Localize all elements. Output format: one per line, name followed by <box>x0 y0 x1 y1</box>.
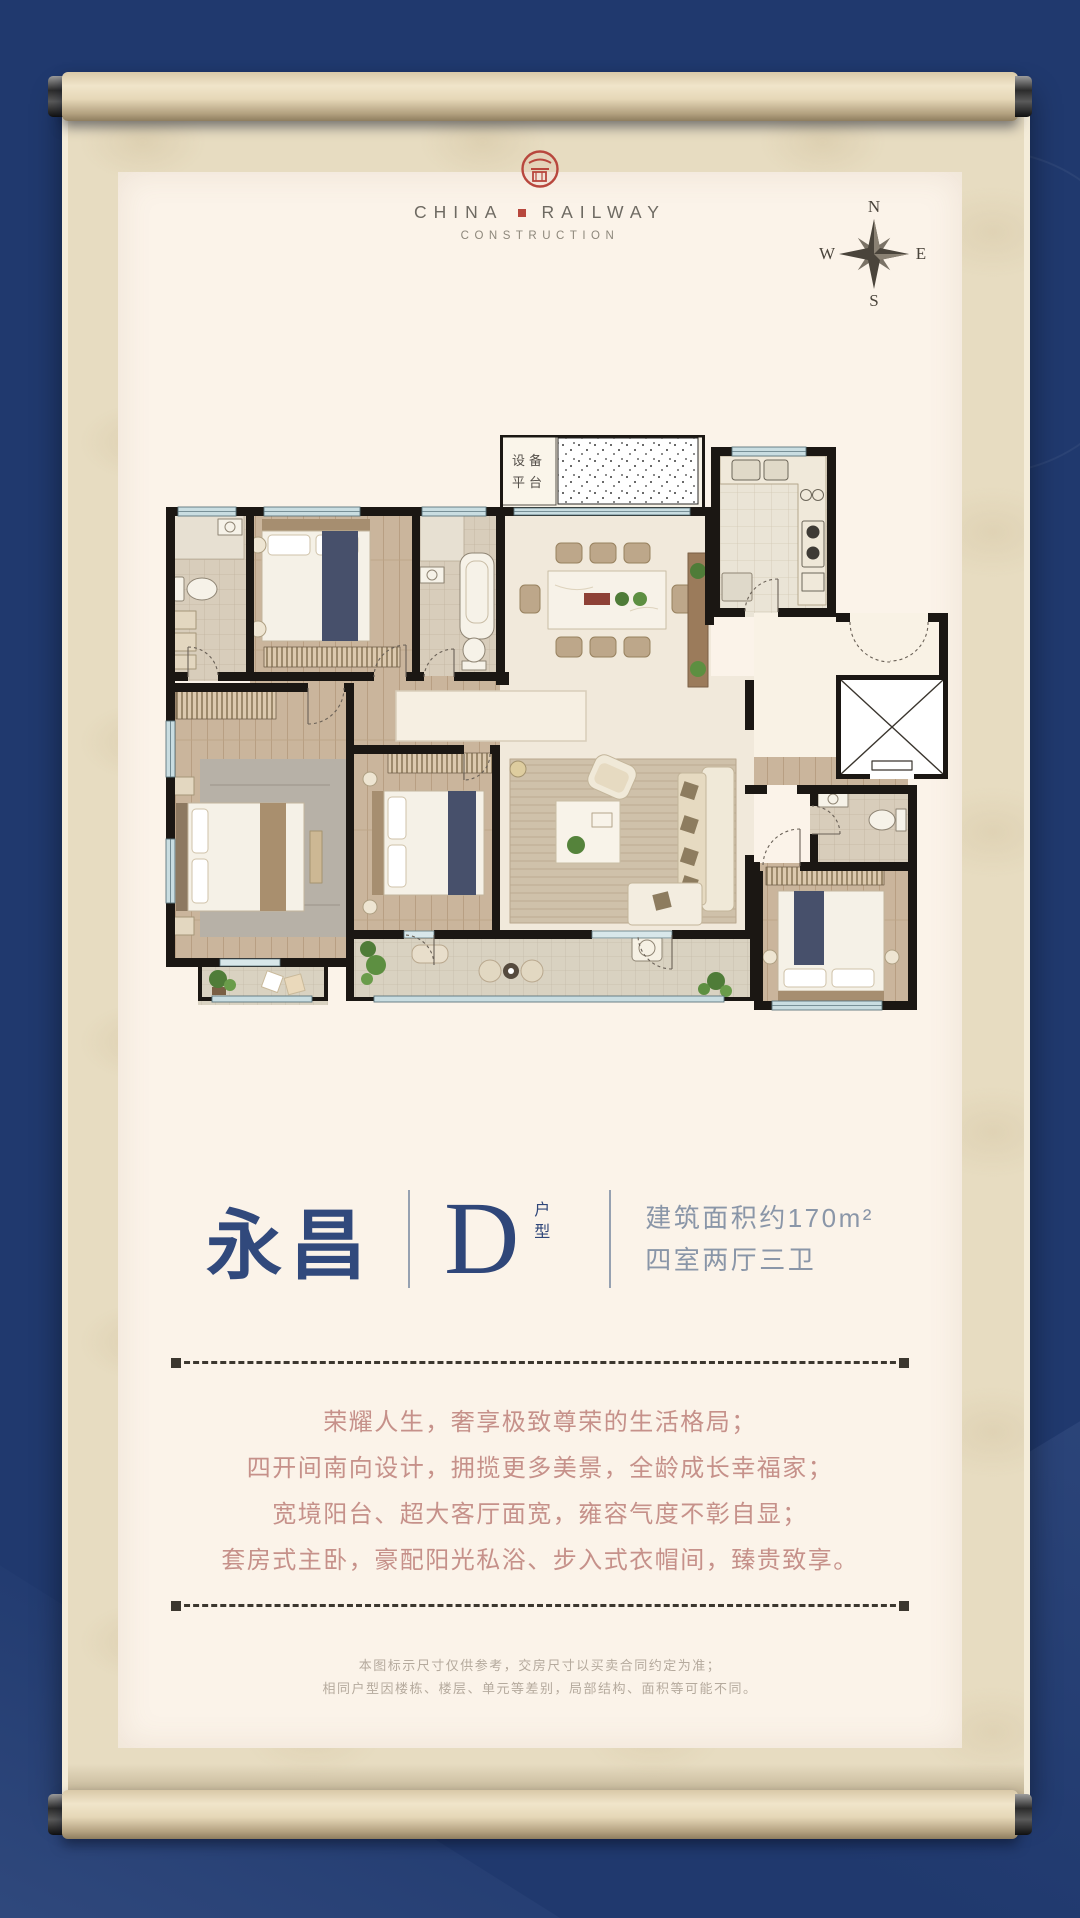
wardrobe-bedroom-3 <box>388 753 494 773</box>
window <box>166 721 175 777</box>
unit-layout: 四室两厅三卫 <box>645 1239 874 1281</box>
marketing-line: 宽境阳台、超大客厅面宽，雍容气度不彰自显； <box>118 1492 962 1538</box>
title-divider <box>408 1190 410 1288</box>
floor-lamp <box>510 761 526 777</box>
scroll-roller-bottom <box>48 1790 1032 1839</box>
logo-word-china: CHINA <box>414 202 503 223</box>
dashed-divider-top <box>175 1361 905 1364</box>
coffee-table <box>556 801 620 863</box>
marketing-line: 荣耀人生，奢享极致尊荣的生活格局； <box>118 1400 962 1446</box>
unit-title-row: 永昌 D 户型 建筑面积约170m² 四室两厅三卫 <box>118 1184 962 1294</box>
unit-suffix: 户型 <box>527 1201 551 1245</box>
sofa <box>702 767 734 911</box>
poster-panel: CHINA RAILWAY CONSTRUCTION N E S W <box>118 172 962 1748</box>
logo-word-railway: RAILWAY <box>541 202 666 223</box>
compass-south-label: S <box>869 291 878 308</box>
equipment-platform-speckle <box>558 438 698 504</box>
equipment-platform-label-row1: 设备 <box>512 453 546 469</box>
window <box>422 507 486 516</box>
compass-west-label: W <box>819 244 836 263</box>
compass-rose-icon: N E S W <box>818 196 930 308</box>
project-name: 永昌 <box>206 1184 374 1294</box>
bathtub <box>460 553 494 639</box>
roller-bar <box>62 72 1018 121</box>
roller-bar <box>62 1790 1018 1839</box>
disclaimer-line: 本图标示尺寸仅供参考，交房尺寸以买卖合同约定为准； <box>118 1654 962 1677</box>
unit-specs: 建筑面积约170m² 四室两厅三卫 <box>645 1197 874 1281</box>
window <box>732 447 806 456</box>
floorplan-diagram: 设备 平台 <box>160 425 960 1020</box>
window <box>772 1001 882 1010</box>
equipment-platform-label-row2: 平台 <box>512 476 546 491</box>
marketing-copy: 荣耀人生，奢享极致尊荣的生活格局； 四开间南向设计，拥揽更多美景，全龄成长幸福家… <box>118 1400 962 1584</box>
window <box>374 996 724 1002</box>
window <box>264 507 360 516</box>
wardrobe-bedroom-2 <box>264 647 400 667</box>
window <box>166 839 175 903</box>
equipment-platform-label-box <box>502 437 556 505</box>
roller-end-cap-right <box>1015 76 1032 117</box>
window <box>514 508 690 515</box>
crcc-seal-icon <box>519 148 561 190</box>
compass-north-label: N <box>868 197 880 216</box>
refrigerator <box>722 573 752 601</box>
sliding-door-glass <box>404 931 434 938</box>
wardrobe-master <box>176 691 276 719</box>
sliding-door-glass <box>220 959 280 966</box>
unit-type-group: D 户型 <box>444 1191 575 1287</box>
unit-area: 建筑面积约170m² <box>645 1197 874 1239</box>
logo-separator-square-icon <box>518 209 526 217</box>
scroll-roller-top <box>48 72 1032 121</box>
compass-east-label: E <box>916 244 926 263</box>
marketing-line: 套房式主卧，豪配阳光私浴、步入式衣帽间，臻贵致享。 <box>118 1538 962 1584</box>
disclaimer-line: 相同户型因楼栋、楼层、单元等差别，局部结构、面积等可能不同。 <box>118 1677 962 1700</box>
unit-letter: D <box>444 1191 519 1287</box>
living-furniture <box>510 752 736 925</box>
logo-wordmark: CHINA RAILWAY <box>414 202 666 223</box>
logo-subtitle: CONSTRUCTION <box>461 230 620 242</box>
window <box>212 996 312 1002</box>
marketing-line: 四开间南向设计，拥揽更多美景，全龄成长幸福家； <box>118 1446 962 1492</box>
corridor-runner <box>396 691 586 741</box>
sliding-door-glass <box>592 931 672 938</box>
dashed-divider-bottom <box>175 1604 905 1607</box>
disclaimer-block: 本图标示尺寸仅供参考，交房尺寸以买卖合同约定为准； 相同户型因楼栋、楼层、单元等… <box>118 1654 962 1700</box>
roller-end-cap-right <box>1015 1794 1032 1835</box>
title-divider <box>609 1190 611 1288</box>
window <box>178 507 236 516</box>
